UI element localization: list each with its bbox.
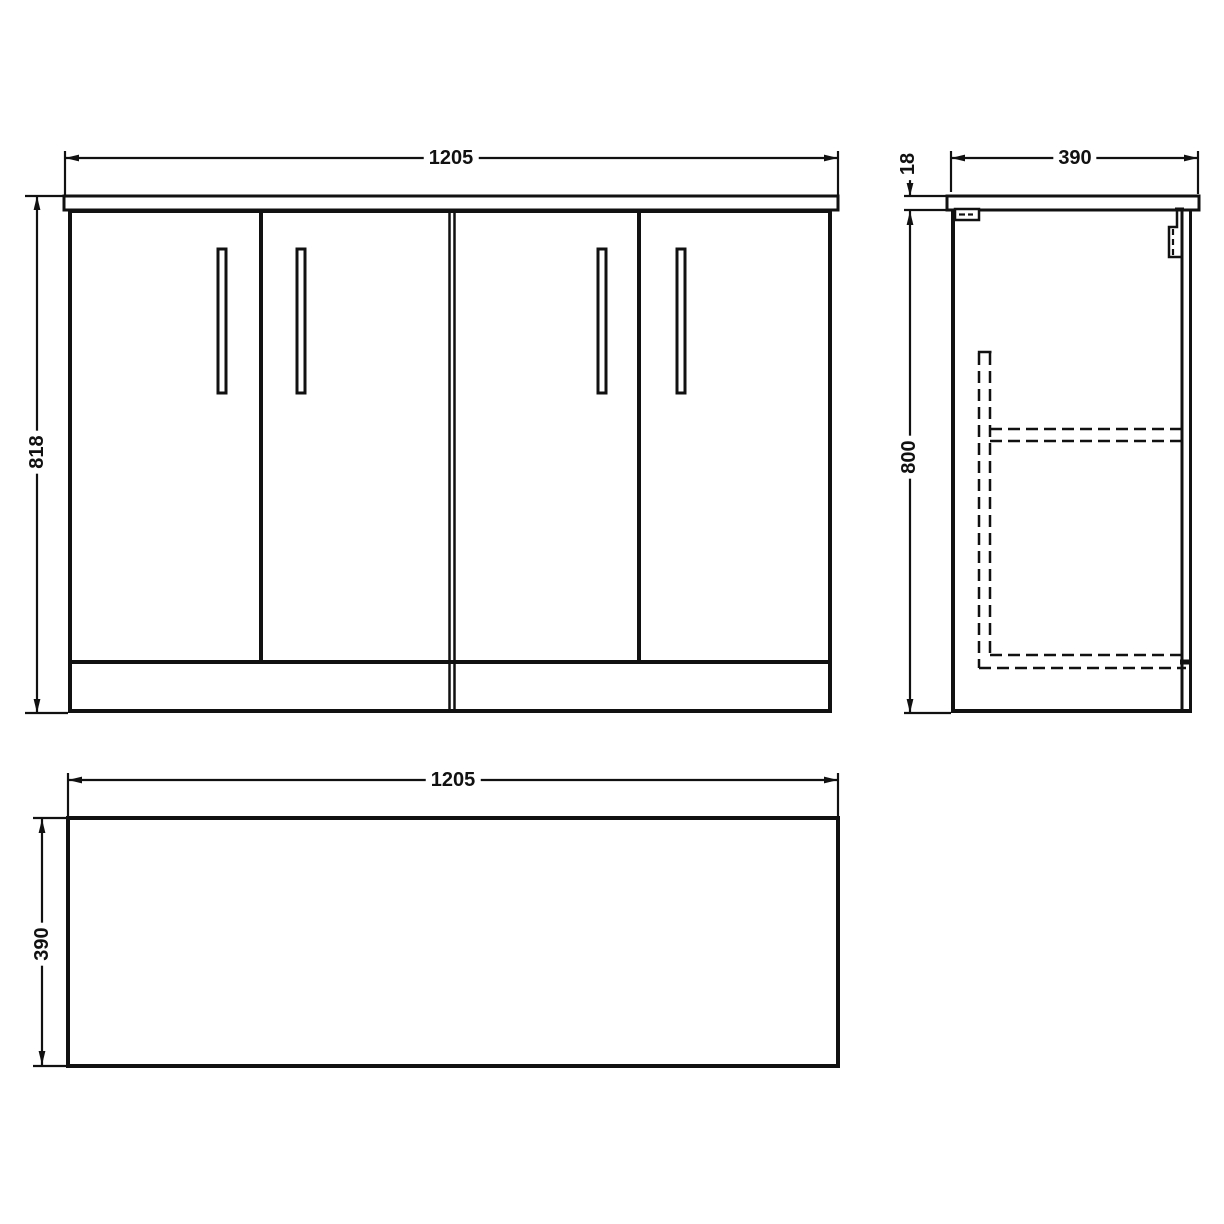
dim-arrow [907, 699, 914, 713]
door-handle [677, 249, 685, 393]
dim-arrow [34, 699, 41, 713]
dim-arrow [39, 819, 46, 833]
door-handle [297, 249, 305, 393]
dim-arrow [824, 777, 838, 784]
worktop-plan-outline [68, 818, 838, 1066]
dim-arrow [907, 211, 914, 225]
dim-arrow [68, 777, 82, 784]
hidden-internal-lines [978, 352, 1186, 668]
front-view [25, 151, 838, 713]
hinge-plate-icon [955, 209, 979, 220]
dim-arrow [1184, 155, 1198, 162]
vanity-unit-drawing [0, 0, 1224, 1224]
dim-arrow [824, 155, 838, 162]
side-view [904, 151, 1199, 713]
worktop-front [64, 196, 838, 210]
dim-label-side-worktop-thickness: 18 [897, 148, 919, 180]
dim-label-plan-depth: 390 [31, 922, 53, 965]
dim-label-front-width: 1205 [424, 147, 479, 169]
dim-label-side-depth: 390 [1053, 147, 1096, 169]
back-panel [1180, 210, 1192, 711]
door-handle [598, 249, 606, 393]
dim-label-front-height: 818 [26, 430, 48, 473]
dim-arrow [34, 196, 41, 210]
dim-arrow [39, 1051, 46, 1065]
dim-arrow [907, 183, 914, 196]
dim-label-plan-width: 1205 [426, 769, 481, 791]
worktop-side [947, 196, 1199, 210]
dim-arrow [951, 155, 965, 162]
technical-drawing-canvas: 1205 818 390 18 800 1205 390 [0, 0, 1224, 1224]
dim-label-side-cabinet-height: 800 [898, 435, 920, 478]
dim-arrow [65, 155, 79, 162]
side-dim-worktop-thickness [904, 176, 947, 210]
door-handle [218, 249, 226, 393]
plan-view [33, 773, 838, 1066]
